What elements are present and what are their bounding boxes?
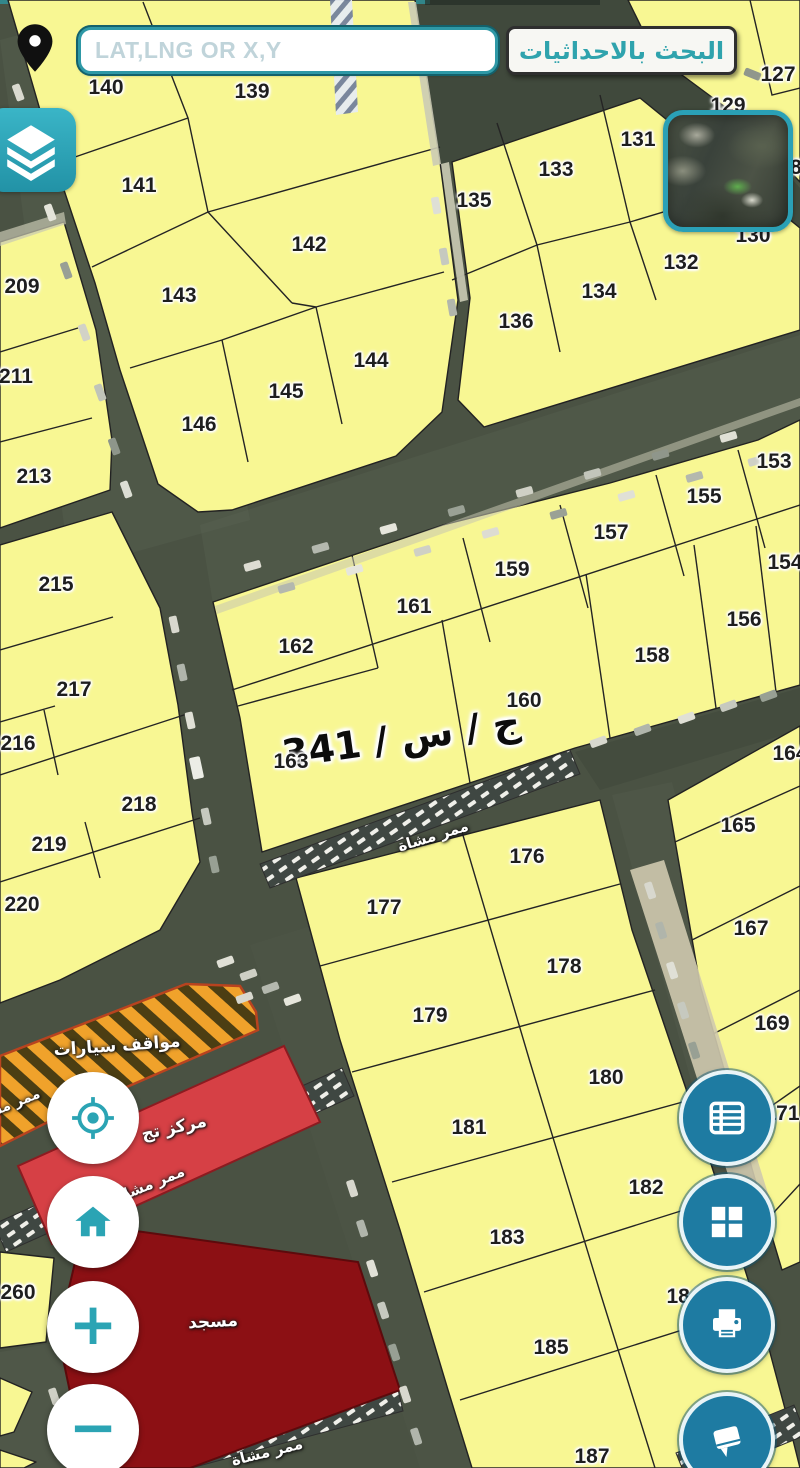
- block-260: [0, 1252, 54, 1348]
- search-by-coordinates-button[interactable]: البحث بالاحداثيات: [506, 26, 737, 75]
- map-app-screen: ج / س / 341 1401391271298130141135133131…: [0, 0, 800, 1468]
- parcel-list-button[interactable]: [679, 1070, 775, 1166]
- home-button[interactable]: [47, 1176, 139, 1268]
- locate-button[interactable]: [47, 1072, 139, 1164]
- layers-icon: [0, 119, 62, 181]
- crosshair-locate-icon: [70, 1095, 116, 1141]
- grid-icon: [706, 1201, 748, 1243]
- zoom-in-button[interactable]: +: [47, 1281, 139, 1373]
- layout-grid-button[interactable]: [679, 1174, 775, 1270]
- home-icon: [71, 1200, 115, 1244]
- list-icon: [706, 1097, 748, 1139]
- printer-icon: [706, 1304, 748, 1346]
- coordinate-search-input[interactable]: [78, 27, 498, 74]
- layers-button[interactable]: [0, 108, 76, 192]
- search-button-label: البحث بالاحداثيات: [519, 37, 724, 65]
- overview-minimap[interactable]: [663, 110, 793, 232]
- book-icon: [706, 1419, 748, 1461]
- plus-icon: +: [69, 1295, 118, 1353]
- zoom-out-button[interactable]: −: [47, 1384, 139, 1468]
- print-button[interactable]: [679, 1277, 775, 1373]
- location-pin-icon: [16, 24, 54, 72]
- minus-icon: −: [69, 1398, 118, 1456]
